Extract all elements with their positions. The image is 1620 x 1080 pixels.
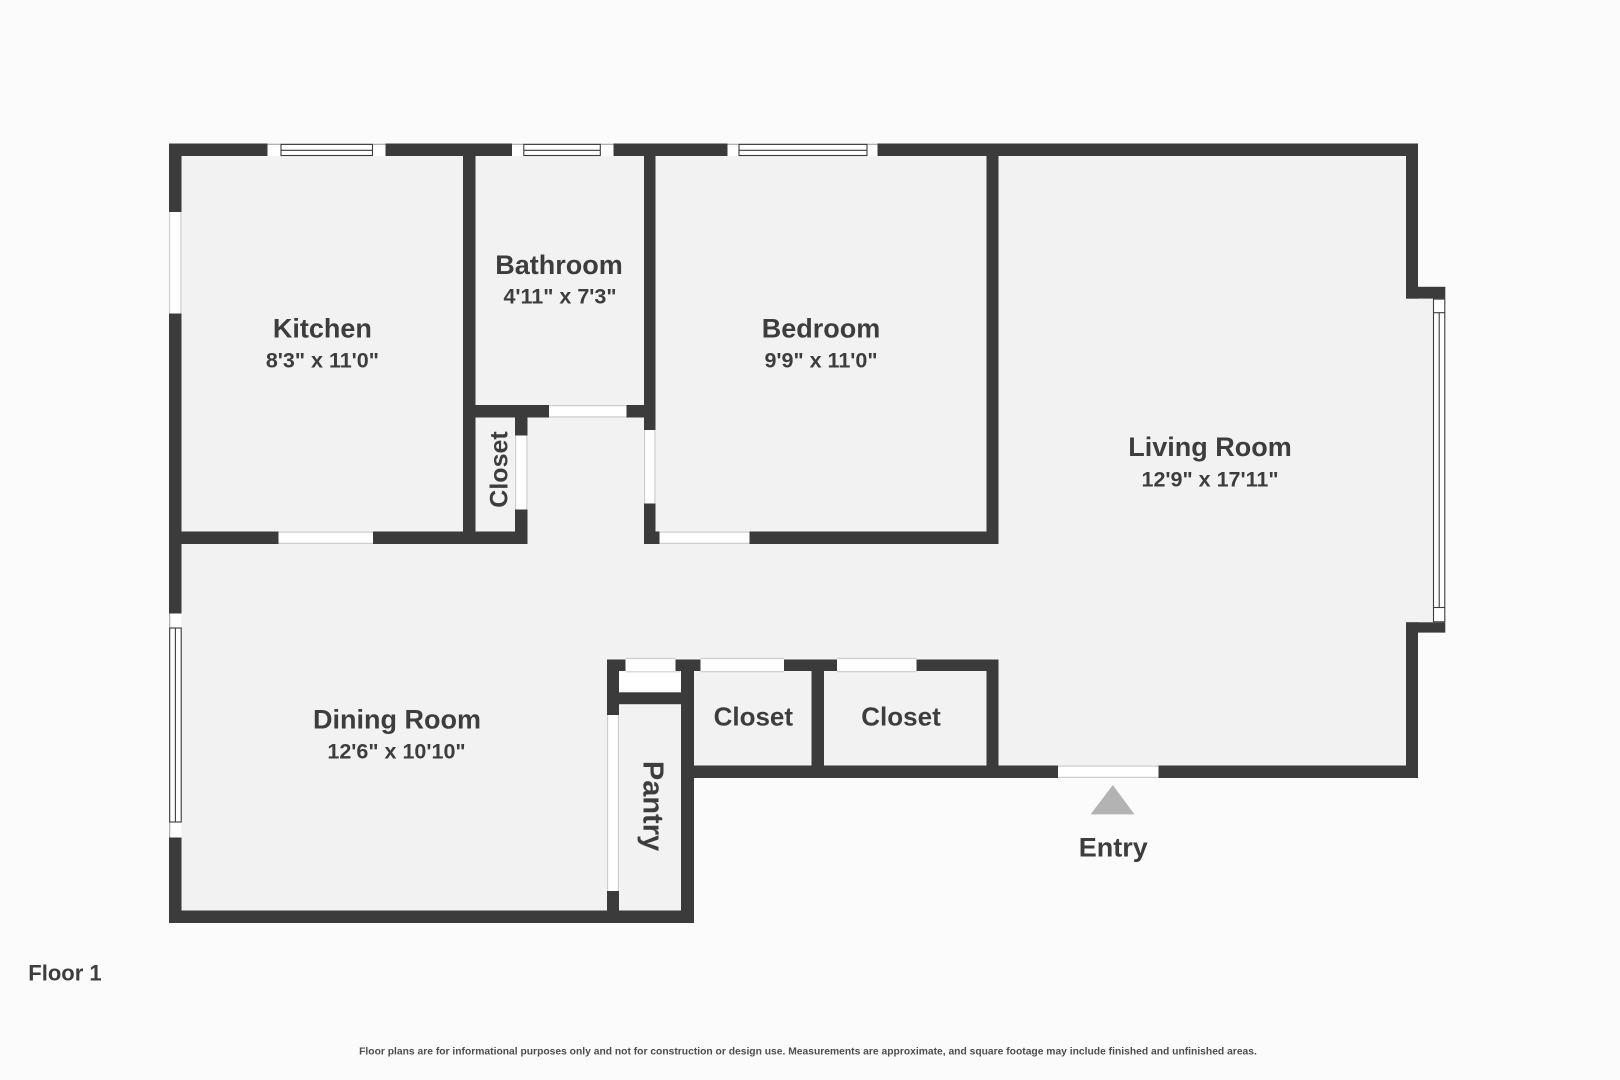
svg-text:9'9" x 11'0": 9'9" x 11'0" [764, 349, 877, 373]
svg-text:Dining Room: Dining Room [313, 705, 481, 735]
svg-text:4'11" x 7'3": 4'11" x 7'3" [503, 285, 616, 309]
svg-text:Entry: Entry [1079, 833, 1148, 863]
svg-text:Pantry: Pantry [637, 761, 669, 851]
svg-text:Kitchen: Kitchen [273, 314, 372, 344]
svg-text:Closet: Closet [714, 702, 794, 732]
svg-text:8'3" x 11'0": 8'3" x 11'0" [266, 349, 379, 373]
svg-text:Bedroom: Bedroom [762, 314, 881, 344]
svg-text:Floor plans are for informatio: Floor plans are for informational purpos… [359, 1047, 1257, 1058]
svg-text:Closet: Closet [861, 702, 941, 732]
svg-text:Closet: Closet [486, 431, 514, 508]
svg-text:Bathroom: Bathroom [495, 250, 623, 280]
svg-text:Floor 1: Floor 1 [28, 960, 101, 985]
svg-text:Living Room: Living Room [1128, 432, 1292, 462]
svg-text:12'9" x 17'11": 12'9" x 17'11" [1141, 468, 1278, 492]
svg-text:12'6" x 10'10": 12'6" x 10'10" [327, 740, 465, 764]
